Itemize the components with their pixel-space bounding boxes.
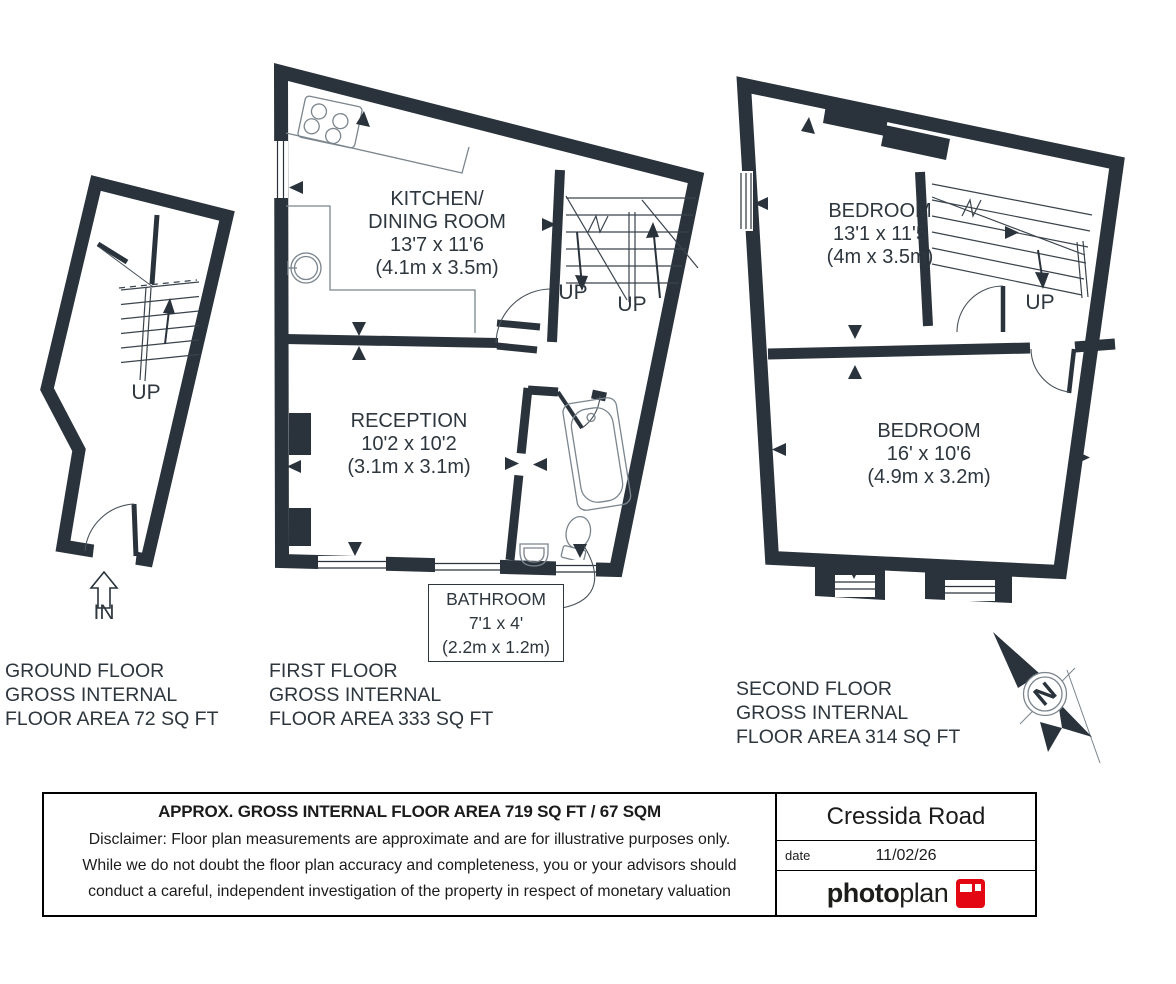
floorplan-page: N KITCHEN/ DINING ROOM 13'7 x 11'6 (4.1m…: [0, 0, 1176, 984]
room-dims-ft: 7'1 x 4': [429, 611, 563, 635]
title-block: Cressida Road date 11/02/26 photoplan: [777, 794, 1035, 915]
room-name: BEDROOM: [827, 200, 934, 223]
total-area-heading: APPROX. GROSS INTERNAL FLOOR AREA 719 SQ…: [44, 802, 775, 822]
north-arrow-icon: N: [993, 632, 1100, 763]
first-up-label-2: UP: [617, 293, 646, 317]
room-name: BEDROOM: [867, 420, 990, 443]
photoplan-logo-icon: [956, 879, 985, 908]
first-floor-caption: FIRST FLOOR GROSS INTERNAL FLOOR AREA 33…: [269, 659, 493, 731]
room-dims-m: (4.9m x 3.2m): [867, 466, 990, 489]
property-address: Cressida Road: [777, 794, 1035, 841]
room-name: KITCHEN/: [368, 188, 506, 211]
bedroom2-label: BEDROOM 16' x 10'6 (4.9m x 3.2m): [867, 420, 990, 489]
room-dims-m: (4.1m x 3.5m): [368, 257, 506, 280]
date-value: 11/02/26: [777, 847, 1035, 865]
first-floor-plan: [273, 72, 698, 608]
room-dims-m: (2.2m x 1.2m): [429, 635, 563, 659]
second-floor-plan: [736, 85, 1117, 603]
disclaimer-text: Disclaimer: Floor plan measurements are …: [44, 827, 775, 905]
area-summary-cell: APPROX. GROSS INTERNAL FLOOR AREA 719 SQ…: [44, 794, 777, 915]
first-up-label-1: UP: [558, 281, 587, 305]
room-dims-ft: 13'1 x 11'5: [827, 223, 934, 246]
ground-up-label: UP: [131, 381, 160, 405]
entrance-label: IN: [94, 601, 115, 625]
room-dims-ft: 13'7 x 11'6: [368, 234, 506, 257]
footer-table: APPROX. GROSS INTERNAL FLOOR AREA 719 SQ…: [42, 792, 1037, 917]
kitchen-label: KITCHEN/ DINING ROOM 13'7 x 11'6 (4.1m x…: [368, 188, 506, 280]
photoplan-logo: photoplan: [777, 871, 1035, 915]
room-name: BATHROOM: [429, 587, 563, 611]
ground-entry-opening: [92, 537, 138, 568]
room-name: RECEPTION: [347, 410, 470, 433]
room-dims-ft: 10'2 x 10'2: [347, 433, 470, 456]
second-floor-caption: SECOND FLOOR GROSS INTERNAL FLOOR AREA 3…: [736, 677, 960, 749]
reception-label: RECEPTION 10'2 x 10'2 (3.1m x 3.1m): [347, 410, 470, 479]
chimney-breast: [289, 413, 311, 455]
room-name: DINING ROOM: [368, 211, 506, 234]
bathroom-callout: BATHROOM 7'1 x 4' (2.2m x 1.2m): [428, 584, 564, 662]
second-up-label: UP: [1025, 291, 1054, 315]
room-dims-m: (3.1m x 3.1m): [347, 456, 470, 479]
logo-text: photoplan: [827, 878, 949, 909]
date-row: date 11/02/26: [777, 841, 1035, 871]
bedroom1-label: BEDROOM 13'1 x 11'5 (4m x 3.5m): [827, 200, 934, 269]
room-dims-ft: 16' x 10'6: [867, 443, 990, 466]
ground-floor-caption: GROUND FLOOR GROSS INTERNAL FLOOR AREA 7…: [5, 659, 218, 731]
room-dims-m: (4m x 3.5m): [827, 246, 934, 269]
